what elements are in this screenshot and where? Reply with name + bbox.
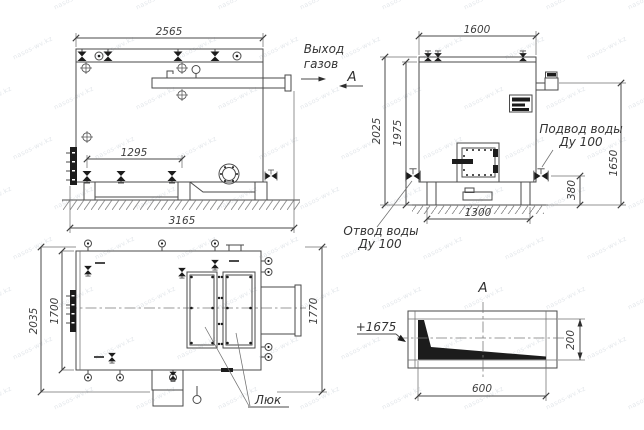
ground-hatch: [62, 200, 300, 210]
water-return-label-line1: Отвод воды: [343, 224, 418, 238]
dim-side-valve-span: 1295: [121, 147, 148, 159]
dim-section-height: 200: [565, 330, 577, 350]
dim-side-top-width: 2565: [156, 26, 183, 38]
water-supply-label-line2: Ду 100: [558, 135, 603, 149]
deposit-wedge: [418, 320, 546, 360]
dim-section-width: 600: [472, 383, 492, 395]
dim-valve-height: 380: [566, 180, 578, 200]
hatch-right: [223, 272, 255, 348]
door-flange-side: [66, 147, 77, 185]
dim-plan-outer-width: 2035: [28, 307, 40, 334]
furnace-door: [452, 143, 499, 182]
boiler-body-plan: [76, 251, 261, 370]
front-view: 1600 2025 1975 1650 380: [343, 24, 626, 251]
dim-plan-body-width: 1700: [49, 297, 61, 324]
nameplate: [510, 95, 533, 112]
hatch-left: [187, 272, 217, 348]
top-flange-icon: [95, 52, 103, 60]
ash-door: [463, 188, 492, 200]
dim-base-width: 1300: [465, 207, 492, 219]
boiler-body-front: [419, 57, 536, 182]
boiler-drawing: 2565 1295 3165 Выход газов А: [0, 0, 644, 430]
top-flange-icon: [233, 52, 241, 60]
gas-duct: [152, 66, 291, 92]
gas-duct-plan: [261, 285, 301, 336]
door-handle: [452, 159, 473, 164]
water-return-valve-icon: [406, 169, 420, 182]
technical-drawing-page: nasos-wv.kznasos-wv.kznasos-wv.kznasos-w…: [0, 0, 644, 430]
gas-flow-arrow-icon: [319, 77, 327, 82]
elevation-label: +1675: [356, 320, 397, 334]
plan-view: Люк 2035 1700 1770: [28, 240, 327, 407]
handle-ring-icon: [193, 396, 201, 404]
boiler-body-side: [76, 49, 263, 182]
flanged-port-icon: [219, 164, 239, 184]
dim-front-height-outer: 2025: [371, 117, 383, 144]
water-supply-label-line1: Подвод воды: [539, 122, 622, 136]
dim-side-total-length: 3165: [169, 215, 196, 227]
gas-outlet-label-line2: газов: [304, 57, 338, 71]
chimney-stub: [536, 72, 558, 90]
section-title: А: [477, 280, 487, 296]
dim-front-height-inner: 1975: [392, 119, 404, 146]
water-return-label-line2: Ду 100: [357, 237, 402, 251]
hatch-label: Люк: [254, 393, 282, 407]
dim-front-width: 1600: [464, 24, 491, 36]
section-view: А +1675 600: [356, 280, 585, 401]
door-flange-plan: [66, 290, 76, 332]
gas-outlet-annotation: Выход газов А: [301, 42, 363, 89]
section-mark-label: А: [346, 69, 356, 85]
side-view: 2565 1295 3165: [62, 26, 300, 233]
dim-plan-right-width: 1770: [308, 297, 320, 324]
section-direction-arrow-icon: [339, 84, 347, 89]
dim-chimney-height: 1650: [608, 149, 620, 176]
gas-outlet-label-line1: Выход: [304, 42, 344, 56]
